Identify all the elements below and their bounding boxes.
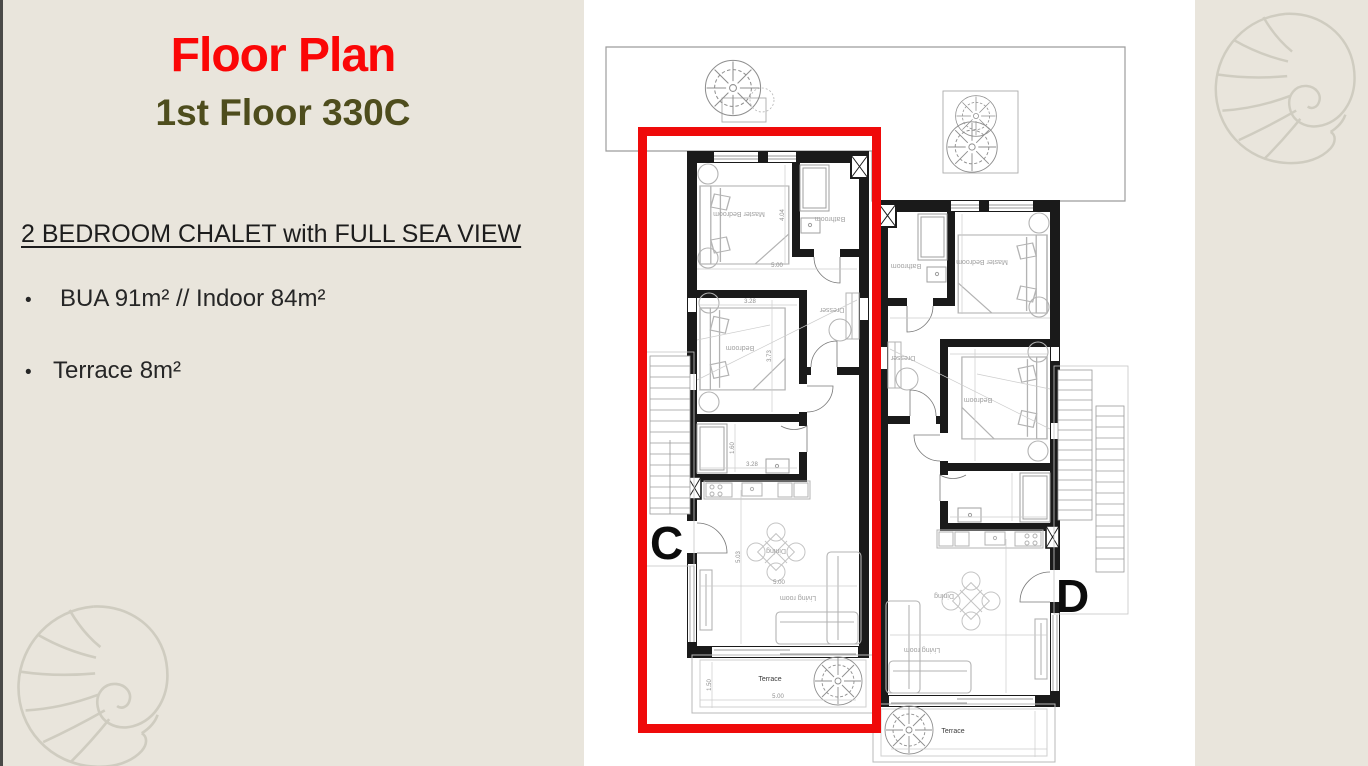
dim-bathroom-depth: 1.60	[730, 442, 736, 454]
bullet-bua: • BUA 91m² // Indoor 84m²	[25, 285, 325, 313]
chalet-heading: 2 BEDROOM CHALET with FULL SEA VIEW	[21, 220, 521, 249]
bullet-terrace: • Terrace 8m²	[25, 357, 181, 385]
room-label-dining-d: Dining	[934, 592, 954, 599]
room-label-living-c: Living room	[780, 594, 816, 601]
room-label-terrace-d: Terrace	[941, 728, 964, 735]
room-label-terrace-c: Terrace	[758, 676, 781, 683]
room-label-dresser-c: Dresser	[819, 306, 844, 313]
dim-master-width: 5.00	[771, 263, 783, 269]
dim-terrace-width: 5.00	[772, 694, 784, 700]
room-label-dining-c: Dining	[766, 547, 786, 554]
unit-d-letter: D	[1056, 570, 1089, 622]
dim-terrace-depth: 1.50	[707, 679, 713, 691]
info-panel: Floor Plan 1st Floor 330C 2 BEDROOM CHAL…	[3, 0, 583, 766]
dim-bedroom-depth: 3.73	[767, 350, 773, 362]
dim-living-width: 5.00	[773, 580, 785, 586]
room-label-bathroom-c: Bathroom	[815, 215, 846, 222]
unit-c-letter: C	[650, 517, 683, 569]
slide: { "slide": { "title": "Floor Plan", "sub…	[0, 0, 1368, 766]
room-label-bedroom-c: Bedroom	[726, 344, 755, 351]
dim-master-depth: 4.04	[780, 209, 786, 221]
bullet-glyph: •	[25, 362, 53, 384]
dim-bathroom-width: 3.28	[746, 462, 758, 468]
room-label-master-bedroom-d: Master Bedroom	[956, 258, 1008, 265]
bullet-terrace-text: Terrace 8m²	[53, 357, 181, 385]
bullet-bua-text: BUA 91m² // Indoor 84m²	[60, 285, 325, 313]
room-label-dresser-d: Dresser	[890, 354, 915, 361]
room-label-bedroom-d: Bedroom	[964, 396, 993, 403]
room-label-bathroom-d: Bathroom	[891, 262, 922, 269]
dim-living-depth: 5.03	[736, 551, 742, 563]
bullet-glyph: •	[25, 290, 60, 312]
room-label-master-bedroom-c: Master Bedroom	[713, 210, 765, 217]
dim-bedroom-width: 3.28	[744, 299, 756, 305]
room-label-living-d: Living room	[904, 646, 940, 653]
page-subtitle: 1st Floor 330C	[3, 92, 563, 134]
page-title: Floor Plan	[3, 28, 563, 83]
shell-watermark-top-right	[1216, 14, 1355, 163]
